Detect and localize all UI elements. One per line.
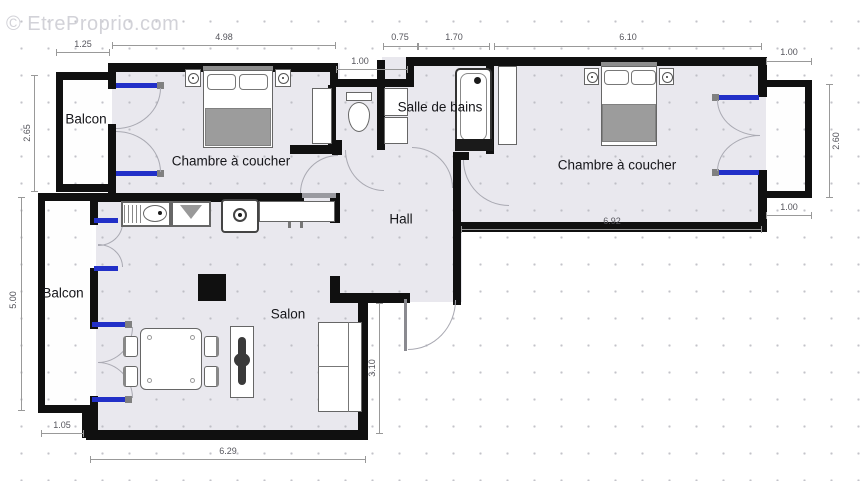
wall <box>762 191 812 198</box>
wall <box>90 396 98 436</box>
pillow <box>207 74 236 90</box>
wall <box>453 152 461 305</box>
wall <box>86 430 368 440</box>
counter-leg <box>300 222 303 228</box>
dimension-line <box>461 229 762 230</box>
dimension-label: 6.92 <box>603 216 621 226</box>
faucet-dot <box>158 211 162 215</box>
chair <box>204 366 219 387</box>
extractor-hood-icon <box>180 205 202 219</box>
dimension-line <box>418 46 490 47</box>
sofa-cushion-line <box>318 366 348 367</box>
room-label-balcony-bottom: Balcon <box>42 286 83 301</box>
dimension-line <box>766 215 812 216</box>
dimension-label: 0.75 <box>391 32 409 42</box>
room-label-living: Salon <box>271 307 306 322</box>
dimension-label: 2.60 <box>831 132 841 150</box>
nightstand <box>275 69 291 87</box>
dimension-line <box>494 46 762 47</box>
bathtub-drain <box>474 77 481 84</box>
dimension-line <box>766 61 812 62</box>
kitchen-drainboard <box>124 205 141 223</box>
dimension-label: 1.05 <box>53 420 71 430</box>
dimension-label: 3.10 <box>367 359 377 377</box>
room-label-balcony-top: Balcon <box>65 112 106 127</box>
dimension-line <box>383 46 418 47</box>
wardrobe <box>312 88 332 144</box>
wardrobe <box>498 66 517 145</box>
dimension-line <box>112 45 336 46</box>
pillow <box>604 70 629 85</box>
table-corner-dot <box>147 378 152 383</box>
dimension-line <box>41 433 84 434</box>
nightstand <box>185 69 201 87</box>
dimension-label: 2.65 <box>22 124 32 142</box>
chair <box>204 336 219 357</box>
dimension-label: 1.00 <box>351 56 369 66</box>
room-label-bedroom-left: Chambre à coucher <box>172 154 291 169</box>
column <box>198 274 226 301</box>
bed-blanket <box>205 108 271 146</box>
wall <box>330 79 414 87</box>
pillow <box>239 74 268 90</box>
dimension-label: 6.29 <box>219 446 237 456</box>
sofa-back-line <box>348 322 349 412</box>
dimension-label: 4.98 <box>215 32 233 42</box>
wall <box>56 72 63 192</box>
dimension-label: 1.25 <box>74 39 92 49</box>
wall <box>38 193 45 413</box>
dimension-line <box>34 75 35 192</box>
watermark: © EtreProprio.com <box>6 13 179 36</box>
dimension-line <box>56 52 110 53</box>
wall <box>805 80 812 198</box>
dimension-line <box>829 84 830 198</box>
counter-leg <box>288 222 291 228</box>
floor-plan: 1.25 4.98 1.00 0.75 1.70 6.10 1.00 2.60 … <box>0 0 862 481</box>
nightstand <box>659 68 674 85</box>
chair <box>123 366 138 387</box>
countertop <box>259 201 335 222</box>
wall <box>108 63 116 89</box>
sofa <box>318 322 362 412</box>
wall <box>330 276 340 303</box>
table-corner-dot <box>190 378 195 383</box>
dimension-line <box>379 303 380 434</box>
room-label-hall: Hall <box>389 212 412 227</box>
sink-vanity <box>384 117 408 144</box>
dimension-line <box>90 459 366 460</box>
wall <box>108 124 116 176</box>
table-corner-dot <box>190 335 195 340</box>
toilet-tank <box>346 92 372 101</box>
lamp-icon <box>662 72 673 83</box>
room-label-bedroom-right: Chambre à coucher <box>558 158 677 173</box>
tv-base <box>234 353 250 367</box>
dimension-label: 1.00 <box>780 202 798 212</box>
bathtub-base <box>455 139 493 151</box>
wall <box>38 193 96 201</box>
door-threshold <box>302 193 336 198</box>
lamp-icon <box>188 73 199 84</box>
lamp-icon <box>587 72 598 83</box>
dimension-label: 1.70 <box>445 32 463 42</box>
lamp-icon <box>278 73 289 84</box>
bed-blanket <box>602 104 656 142</box>
dimension-label: 5.00 <box>8 291 18 309</box>
wall <box>406 57 766 66</box>
room-label-bathroom: Salle de bains <box>398 100 483 115</box>
dimension-line <box>336 69 408 70</box>
dimension-label: 1.00 <box>780 47 798 57</box>
dimension-line <box>21 197 22 411</box>
kitchen-sink-bowl <box>143 205 167 222</box>
grid-background <box>0 0 862 481</box>
dimension-label: 6.10 <box>619 32 637 42</box>
wall <box>330 293 410 303</box>
wall <box>56 72 110 80</box>
nightstand <box>584 68 599 85</box>
chair <box>123 336 138 357</box>
table-corner-dot <box>147 335 152 340</box>
entry-door-leaf <box>404 299 407 351</box>
wall <box>90 268 98 329</box>
pillow <box>631 70 656 85</box>
washing-machine-dot <box>238 213 242 217</box>
